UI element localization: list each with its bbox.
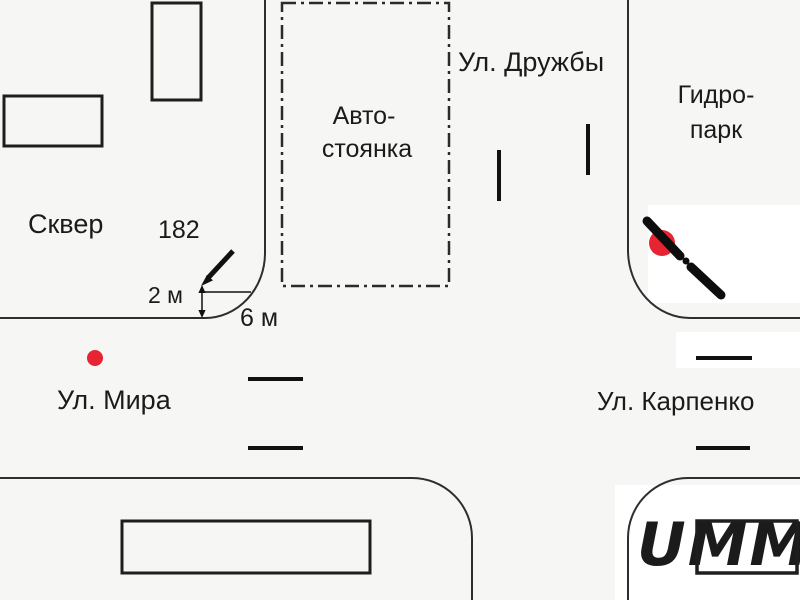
area-label-square: Сквер — [28, 209, 103, 239]
parking-label-line2: стоянка — [322, 135, 412, 163]
street-label-mira: Ул. Мира — [57, 385, 172, 415]
area-label-hydropark-line1: Гидро- — [678, 81, 755, 109]
accident-scheme-page: UMM — [0, 0, 800, 600]
building-number-label: 182 — [158, 216, 200, 244]
white-patch — [648, 205, 800, 303]
area-label-hydropark-line2: парк — [690, 116, 743, 144]
motorcycle-hub-dot — [683, 258, 690, 265]
white-patch — [676, 332, 800, 368]
red-dot-icon — [87, 350, 103, 366]
accident-scheme-map: UMM — [0, 0, 800, 600]
dimension-label-6m: 6 м — [240, 304, 278, 332]
street-label-druzhby: Ул. Дружбы — [458, 47, 604, 77]
parking-label-line1: Авто- — [333, 102, 396, 130]
street-label-karpenko: Ул. Карпенко — [597, 386, 755, 416]
dimension-label-2m: 2 м — [148, 282, 183, 308]
